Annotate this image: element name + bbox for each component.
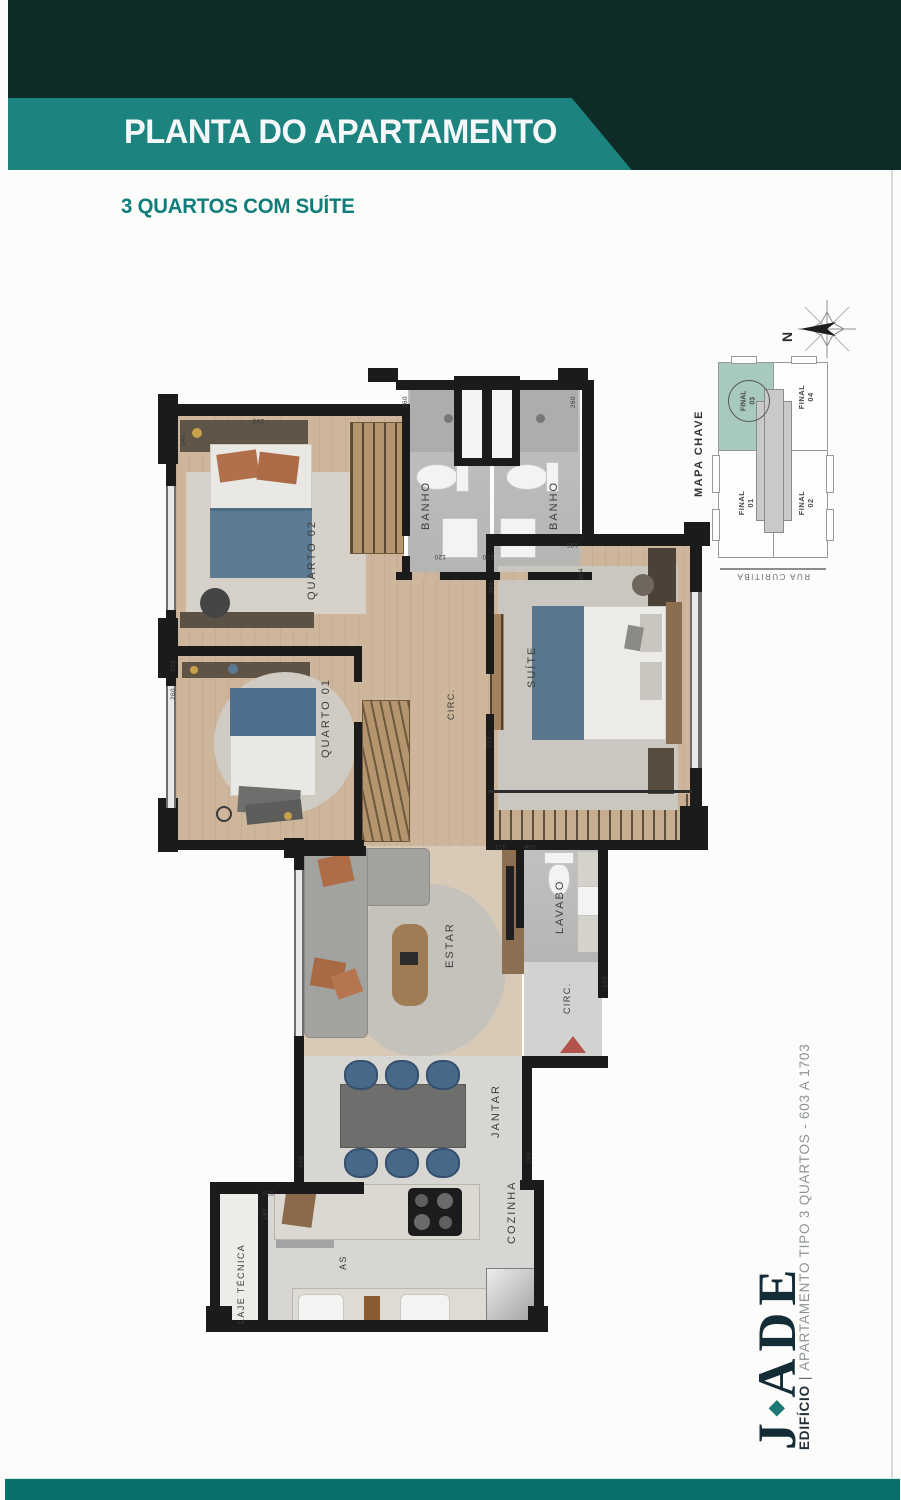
burner-icon	[437, 1193, 453, 1209]
dimension-label: 404	[578, 568, 585, 580]
page-edge-line	[891, 170, 893, 1478]
logo-diamond-icon: ◆	[765, 1398, 787, 1416]
lamp-icon	[190, 666, 198, 674]
room-label-banho2: BANHO	[548, 481, 560, 530]
room-label-banho1: BANHO	[420, 481, 432, 530]
brand-separator: |	[797, 1376, 812, 1380]
room-label-circ: CIRC.	[446, 689, 456, 721]
lamp-icon	[192, 428, 202, 438]
burner-icon	[415, 1194, 428, 1207]
room-label-cozinha: COZINHA	[506, 1181, 518, 1245]
dimension-label: 135	[566, 541, 578, 548]
chair-quarto02	[200, 588, 230, 618]
dining-chair	[426, 1060, 460, 1090]
coffee-table	[392, 924, 428, 1006]
keymap-highlight-circle: FINAL 03	[728, 380, 770, 422]
ventilation-shaft	[462, 382, 482, 458]
dimension-label: 370	[262, 1189, 274, 1196]
dimension-label: 120	[434, 553, 446, 560]
brochure-page: { "header": { "title": "PLANTA DO APARTA…	[0, 0, 901, 1500]
dimension-label: 260	[402, 396, 409, 408]
dimension-label: 197	[262, 1208, 269, 1220]
room-label-suite: SUÍTE	[526, 646, 538, 688]
dimension-label: 146	[180, 434, 187, 446]
dimension-label: 452	[298, 1156, 305, 1168]
window	[166, 486, 176, 610]
page-subtitle: 3 QUARTOS COM SUÍTE	[121, 195, 355, 219]
dimension-label: 260	[170, 688, 177, 700]
floor-plan: QUARTO 02 BANHO BANHO SUÍTE QUARTO 01 CI…	[158, 368, 706, 1348]
page-title: PLANTA DO APARTAMENTO	[124, 113, 557, 152]
room-label-quarto02: QUARTO 02	[306, 520, 318, 600]
toilet-banho2	[506, 464, 548, 490]
room-label-laje-tecnica: LAJE TÉCNICA	[236, 1244, 246, 1324]
dining-table	[340, 1084, 466, 1148]
desk-quarto02	[180, 612, 314, 628]
shower-head-icon	[444, 414, 453, 423]
room-label-quarto01: QUARTO 01	[320, 678, 332, 758]
pillow	[640, 614, 662, 652]
headboard-suite	[666, 602, 682, 744]
dining-chair	[344, 1060, 378, 1090]
keymap-unit-label: FINAL 02	[797, 485, 816, 521]
keymap-title: MAPA CHAVE	[693, 410, 705, 497]
dimension-label: 275	[486, 736, 493, 748]
blanket-quarto02	[210, 508, 312, 578]
basket	[282, 1188, 317, 1228]
dimension-label: 290	[252, 417, 264, 424]
dimension-label: 103	[602, 976, 609, 988]
pillow	[256, 452, 299, 485]
dining-chair	[385, 1060, 419, 1090]
dimension-label: 260	[570, 396, 577, 408]
dimension-label: 311	[495, 843, 506, 850]
ventilation-shaft	[492, 382, 512, 458]
utensil-holder	[364, 1296, 380, 1320]
pillow-headrest-quarto01	[230, 688, 316, 736]
brand-building-label: EDIFÍCIO	[797, 1385, 812, 1450]
toilet-tank-lavabo	[544, 852, 574, 864]
dimension-label: 259	[526, 1152, 533, 1164]
dining-chair	[426, 1148, 460, 1178]
dimension-label: 304	[488, 582, 495, 594]
shower-head-icon	[536, 414, 545, 423]
keymap-building: FINAL 03 FINAL 04 FINAL 01 FINAL 02	[718, 362, 828, 558]
window	[690, 592, 702, 768]
pillow	[216, 449, 260, 482]
dimension-label: 166	[524, 843, 536, 850]
tv-remote-icon	[400, 952, 418, 965]
window	[294, 870, 304, 1036]
sink-banho1	[442, 518, 478, 558]
chair-suite	[632, 574, 654, 596]
room-label-estar: ESTAR	[444, 922, 456, 968]
wardrobe-quarto02	[350, 422, 404, 554]
blanket-suite	[532, 606, 584, 740]
wardrobe-quarto01	[362, 700, 410, 842]
brand-unit-range: APARTAMENTO TIPO 3 QUARTOS - 603 A 1703	[797, 1043, 812, 1370]
headphones-icon	[216, 806, 232, 822]
street-label: RUA CURITIBA	[720, 572, 826, 581]
keymap-unit-label: FINAL 03	[740, 386, 758, 416]
room-label-as: AS	[338, 1255, 348, 1270]
burner-icon	[414, 1214, 430, 1230]
room-label-jantar: JANTAR	[490, 1084, 502, 1138]
sink-lavabo	[577, 886, 599, 916]
window	[166, 686, 176, 808]
dimension-label: 323	[170, 660, 177, 672]
bench-suite	[648, 748, 674, 794]
brand-tagline: EDIFÍCIO|APARTAMENTO TIPO 3 QUARTOS - 60…	[797, 1043, 812, 1450]
vase-icon	[228, 664, 238, 674]
dining-chair	[385, 1148, 419, 1178]
room-label-lavabo: LAVABO	[554, 880, 566, 934]
pillow	[640, 662, 662, 700]
tv-icon	[506, 866, 514, 940]
footer-bar	[5, 1478, 900, 1500]
keymap-unit-label: FINAL 04	[797, 379, 816, 415]
compass-rose-icon	[796, 298, 858, 360]
dimension-label: 120	[482, 553, 494, 560]
keymap-unit-label: FINAL 01	[737, 485, 756, 521]
room-label-circ2: CIRC.	[562, 983, 572, 1015]
compass-north-label: N	[779, 332, 795, 342]
dining-chair	[344, 1148, 378, 1178]
entrance-arrow-icon	[560, 1036, 586, 1053]
title-banner: PLANTA DO APARTAMENTO	[8, 98, 638, 170]
toilet-tank	[456, 462, 469, 492]
burner-icon	[439, 1216, 452, 1229]
street-line	[720, 568, 826, 570]
counter-edge	[276, 1240, 334, 1248]
candle-icon	[284, 812, 292, 820]
